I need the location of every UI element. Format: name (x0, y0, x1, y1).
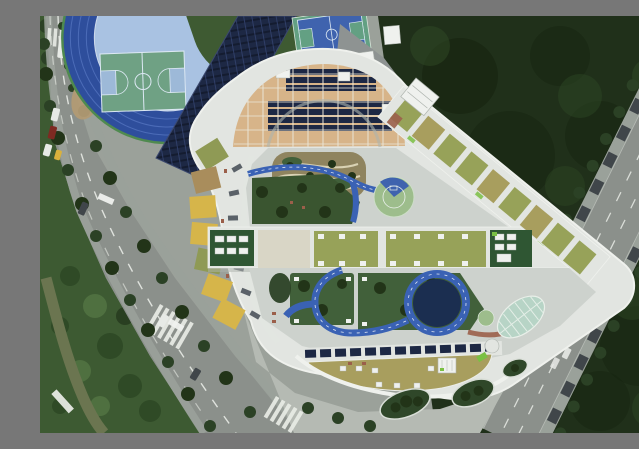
round-pavilion (485, 339, 499, 353)
roof-plaza (258, 230, 310, 268)
dzone-basketball-court (100, 51, 186, 112)
small-green-circle (478, 310, 494, 326)
roof-box (338, 72, 350, 81)
aerial-photo-campus (40, 16, 639, 433)
tree-cluster (269, 273, 291, 303)
green-roof-bar (386, 231, 486, 267)
rooftop-unit (438, 358, 456, 373)
central-band (208, 227, 573, 272)
ring-pond (408, 274, 466, 332)
half-court-circle (374, 177, 414, 217)
shed (383, 25, 401, 44)
